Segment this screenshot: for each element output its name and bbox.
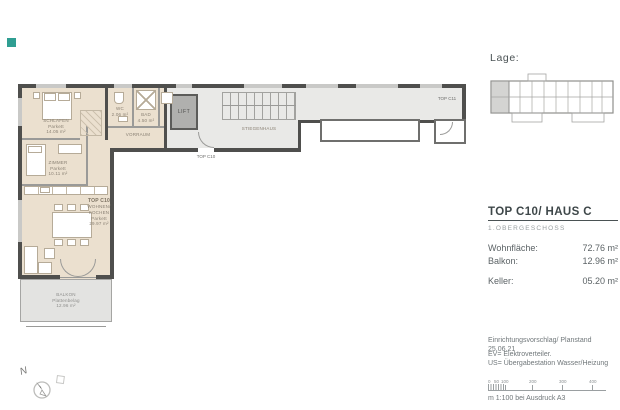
chair <box>54 204 63 211</box>
room-label-stiegenhaus: STIEGENHAUS <box>214 126 304 132</box>
room-label-wc: WC 2.06 m² <box>108 106 132 117</box>
pillow <box>44 93 56 101</box>
entry-unit-label: TOP C10 <box>190 154 222 159</box>
site-plan <box>488 68 618 134</box>
scale-tick-label: 400 <box>589 379 597 384</box>
balcony-dimension-line <box>26 326 106 327</box>
wall-top <box>18 84 466 88</box>
pillow <box>28 146 42 153</box>
neighbor-unit-lower <box>320 119 420 142</box>
unit-floor: 1.OBERGESCHOSS <box>488 225 565 232</box>
neighbor-unit-label: TOP C11 <box>432 96 462 101</box>
chair <box>54 239 63 246</box>
window-top-7 <box>420 84 442 88</box>
coffee-table <box>44 248 55 259</box>
staircase <box>222 92 296 120</box>
floor-vorraum <box>108 128 166 148</box>
window-top-2 <box>114 84 132 88</box>
sofa-chaise <box>38 262 52 274</box>
area-row-balkon: Balkon: 12.96 m² <box>488 255 618 268</box>
nightstand <box>33 92 40 99</box>
pillow <box>58 93 70 101</box>
room-label-balkon: BALKON Plattenbelag 12.96 m² <box>36 292 96 309</box>
elevator-label: LIFT <box>178 109 190 115</box>
wall-arm-bottom-1 <box>110 148 198 152</box>
area-value: 72.76 m² <box>582 242 618 255</box>
desk <box>58 144 82 154</box>
chair <box>67 204 76 211</box>
toilet <box>114 92 124 104</box>
staircase-landing-line <box>222 105 296 106</box>
elevator: LIFT <box>170 94 198 130</box>
window-top-5 <box>306 84 338 88</box>
wall-service-bottom <box>108 126 164 128</box>
kitchen-counter <box>24 186 108 195</box>
scale-caption: m 1:100 bei Ausdruck A3 <box>488 395 565 402</box>
window-top-6 <box>356 84 398 88</box>
area-value: 12.96 m² <box>582 255 618 268</box>
chair <box>67 239 76 246</box>
area-label: Balkon: <box>488 255 518 268</box>
balcony-door-sill <box>60 277 96 278</box>
room-label-schlafen: SCHLAFEN Parkett 14.05 m² <box>34 118 78 135</box>
kitchen-sink <box>40 187 50 193</box>
scale-tick-label: 200 <box>529 379 537 384</box>
wall-bad-ar <box>158 88 160 128</box>
area-label: Keller: <box>488 275 514 288</box>
room-label-zimmer: ZIMMER Parkett 10.11 m² <box>36 160 80 177</box>
sofa <box>24 246 38 274</box>
shower <box>136 90 156 110</box>
washing-machine <box>161 92 173 104</box>
lage-label: Lage: <box>490 52 519 64</box>
scale-tick-label: 300 <box>559 379 567 384</box>
chair <box>80 239 89 246</box>
window-top-1 <box>36 84 66 88</box>
window-top-4 <box>244 84 282 88</box>
window-left-1 <box>18 98 22 126</box>
area-row-wohnflaeche: Wohnfläche: 72.76 m² <box>488 242 618 255</box>
window-top-3 <box>176 84 192 88</box>
window-left-2 <box>18 200 22 242</box>
area-value: 05.20 m² <box>582 275 618 288</box>
nightstand <box>74 92 81 99</box>
wall-stairblock-right <box>298 120 301 152</box>
room-label-vorraum: VORRAUM <box>116 132 160 138</box>
room-label-wohnen: TOP C10 WOHNEN/ KOCHEN Parkett 29.97 m² <box>86 198 112 227</box>
wall-bedroom-bottom <box>22 138 80 140</box>
floorplan-page: LIFT STIEGENHAUS TOP C10 TOP C11 <box>0 0 620 410</box>
area-label: Wohnfläche: <box>488 242 538 255</box>
wardrobe <box>80 110 102 136</box>
compass-icon <box>28 374 68 404</box>
area-row-keller: Keller: 05.20 m² <box>488 275 618 288</box>
unit-title: TOP C10/ HAUS C <box>488 206 618 221</box>
wall-arm-bottom-2 <box>214 148 301 152</box>
us-note: US= Übergabestation Wasser/Heizung <box>488 359 608 368</box>
room-label-bad: BAD 4.50 m² <box>134 112 158 123</box>
scale-baseline <box>488 390 606 391</box>
teal-marker <box>7 38 16 47</box>
